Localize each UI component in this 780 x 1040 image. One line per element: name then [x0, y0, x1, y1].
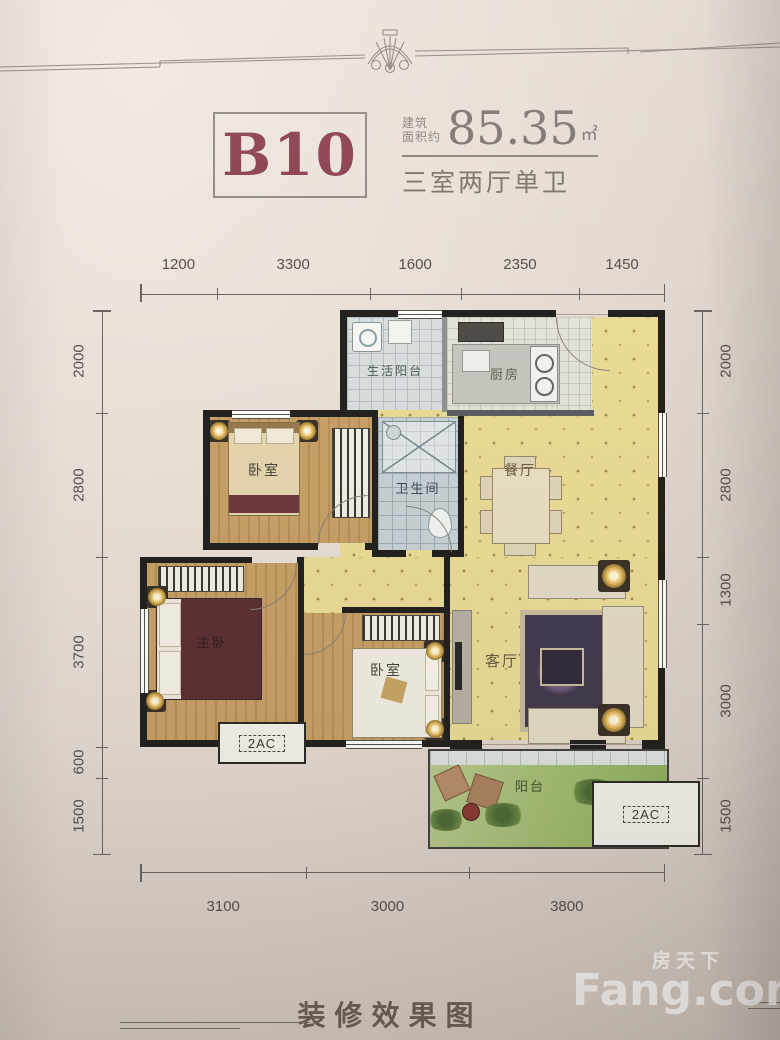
shower — [382, 421, 456, 473]
ac-label: 2AC — [239, 735, 285, 752]
wall — [658, 310, 665, 747]
lamp — [426, 720, 444, 738]
dimension-ruler-right: 2000 2800 1300 3000 1500 — [702, 310, 749, 855]
pillow — [159, 651, 181, 695]
area-label-line2: 面积约 — [402, 130, 441, 144]
shower-head — [386, 425, 401, 440]
window — [232, 410, 290, 419]
window — [346, 740, 422, 749]
lamp — [148, 588, 166, 606]
room-label-dining: 餐厅 — [490, 460, 550, 480]
washer-drum — [359, 329, 377, 347]
dim-value: 3100 — [207, 898, 240, 915]
dim-value: 2000 — [718, 345, 735, 378]
pillow — [266, 428, 294, 444]
lamp — [210, 422, 228, 440]
wall — [422, 740, 444, 747]
entry-door-sill — [556, 314, 608, 315]
wall — [642, 740, 665, 749]
wall — [444, 557, 450, 747]
wall — [140, 557, 147, 609]
dim-segment: 3800 — [469, 873, 665, 917]
wall — [608, 310, 665, 317]
wall — [458, 410, 464, 557]
window — [658, 413, 667, 477]
window — [140, 609, 149, 693]
balcony-door-sill — [482, 744, 642, 745]
dim-segment: 1600 — [370, 256, 461, 294]
dim-segment: 2800 — [703, 413, 749, 557]
dim-value: 600 — [71, 750, 88, 775]
dining-chair — [548, 510, 562, 534]
tv — [455, 642, 462, 690]
area-value: 85.35 — [447, 104, 579, 152]
dim-value: 1200 — [162, 256, 195, 273]
wall — [140, 740, 222, 747]
room-label-kitchen: 厨房 — [475, 364, 535, 383]
dimension-ruler-left: 2000 2800 3700 600 1500 — [56, 310, 103, 855]
area-label: 建筑 面积约 — [402, 116, 441, 144]
dim-value: 2000 — [71, 345, 88, 378]
floor-plan: 2AC 2AC 生活阳台 厨房 卧室 卫生间 餐厅 主卧 卧室 客厅 阳台 — [140, 310, 665, 855]
burner — [535, 354, 554, 373]
room-label-bathroom: 卫生间 — [378, 478, 458, 497]
top-border-ornament — [0, 0, 780, 90]
dim-segment: 1500 — [703, 778, 749, 855]
dim-value: 3700 — [71, 635, 88, 668]
wall — [450, 740, 482, 749]
wall — [203, 543, 318, 550]
dim-value: 2800 — [718, 468, 735, 501]
dim-value: 1500 — [71, 800, 88, 833]
lamp — [298, 422, 316, 440]
dim-segment: 2000 — [56, 310, 102, 413]
lamp — [602, 564, 626, 588]
window — [658, 580, 667, 668]
wardrobe — [158, 566, 244, 592]
lamp — [426, 642, 444, 660]
caption-deco-left-inner — [120, 1028, 240, 1029]
dim-segment: 1500 — [56, 778, 102, 855]
room-label-service-balcony: 生活阳台 — [348, 362, 442, 379]
wall — [447, 410, 594, 416]
dim-segment: 3100 — [140, 873, 306, 917]
wall — [442, 310, 556, 317]
watermark: 房天下 Fang.com — [572, 946, 780, 1016]
pillow — [159, 603, 181, 647]
ac-platform-right: 2AC — [592, 781, 700, 847]
wall — [442, 317, 447, 412]
room-label-bedroom-mid: 卧室 — [354, 660, 418, 680]
dim-segment: 1200 — [140, 256, 217, 294]
unit-code: B10 — [222, 121, 358, 189]
caption-deco-left — [120, 1022, 310, 1033]
room-label-balcony: 阳台 — [498, 776, 562, 795]
dim-segment: 2000 — [703, 310, 749, 413]
wall — [340, 310, 398, 317]
lamp — [146, 692, 164, 710]
dim-value: 3000 — [371, 898, 404, 915]
unit-code-box: B10 — [213, 112, 367, 198]
dim-value: 2350 — [503, 256, 536, 273]
title-divider-line — [402, 155, 598, 157]
wall — [203, 410, 378, 417]
area-label-line1: 建筑 — [402, 116, 441, 130]
floorplan-photo: B10 建筑 面积约 85.35 ㎡ 三室两厅单卫 1200 3300 1600… — [0, 0, 780, 1040]
dining-chair — [548, 476, 562, 500]
window — [398, 310, 442, 319]
burner — [535, 377, 554, 396]
kitchen-appliance — [458, 322, 504, 342]
wall — [203, 410, 210, 550]
dimension-ruler-top: 1200 3300 1600 2350 1450 — [140, 256, 665, 295]
washing-machine — [352, 322, 382, 352]
dim-value: 3300 — [276, 256, 309, 273]
dim-value: 1450 — [605, 256, 638, 273]
dimension-ruler-bottom: 3100 3000 3800 — [140, 872, 665, 917]
dim-segment: 2800 — [56, 413, 102, 557]
bush — [426, 809, 466, 831]
lamp — [602, 708, 626, 732]
dim-segment: 3000 — [703, 624, 749, 778]
pillow — [234, 428, 262, 444]
room-label-bedroom-top: 卧室 — [232, 460, 296, 480]
area-block: 建筑 面积约 85.35 ㎡ 三室两厅单卫 — [402, 104, 612, 199]
dim-segment: 1450 — [579, 256, 665, 294]
dim-segment: 1300 — [703, 557, 749, 624]
wall — [378, 550, 406, 557]
blanket — [229, 495, 299, 513]
wall — [304, 740, 346, 747]
dining-chair — [504, 542, 536, 556]
dim-segment: 3700 — [56, 557, 102, 747]
caption-text: 装修效果图 — [297, 1000, 482, 1031]
ac-platform-left: 2AC — [218, 722, 306, 764]
dim-value: 1300 — [718, 574, 735, 607]
dim-value: 1500 — [718, 800, 735, 833]
dim-value: 3000 — [718, 684, 735, 717]
ac-label: 2AC — [623, 806, 669, 823]
corridor-floor — [304, 557, 444, 613]
dim-segment: 3000 — [306, 873, 468, 917]
area-unit: ㎡ — [581, 120, 598, 145]
wall — [342, 607, 444, 613]
area-row: 建筑 面积约 85.35 ㎡ — [402, 104, 612, 152]
dim-value: 3800 — [550, 898, 583, 915]
dim-value: 2800 — [71, 468, 88, 501]
room-label-master-bedroom: 主卧 — [182, 632, 242, 651]
wall — [140, 557, 252, 563]
dim-segment: 2350 — [461, 256, 579, 294]
watermark-cn: 房天下 — [584, 946, 780, 973]
wall — [340, 310, 347, 417]
dim-segment: 600 — [56, 747, 102, 778]
cushion — [381, 677, 408, 704]
layout-type: 三室两厅单卫 — [402, 163, 612, 199]
wardrobe — [362, 615, 440, 641]
bush — [480, 803, 526, 827]
coffee-table — [540, 648, 584, 686]
dim-value: 1600 — [398, 256, 431, 273]
utility-sink — [388, 320, 412, 344]
dim-segment: 3300 — [217, 256, 370, 294]
room-label-living: 客厅 — [470, 650, 534, 671]
